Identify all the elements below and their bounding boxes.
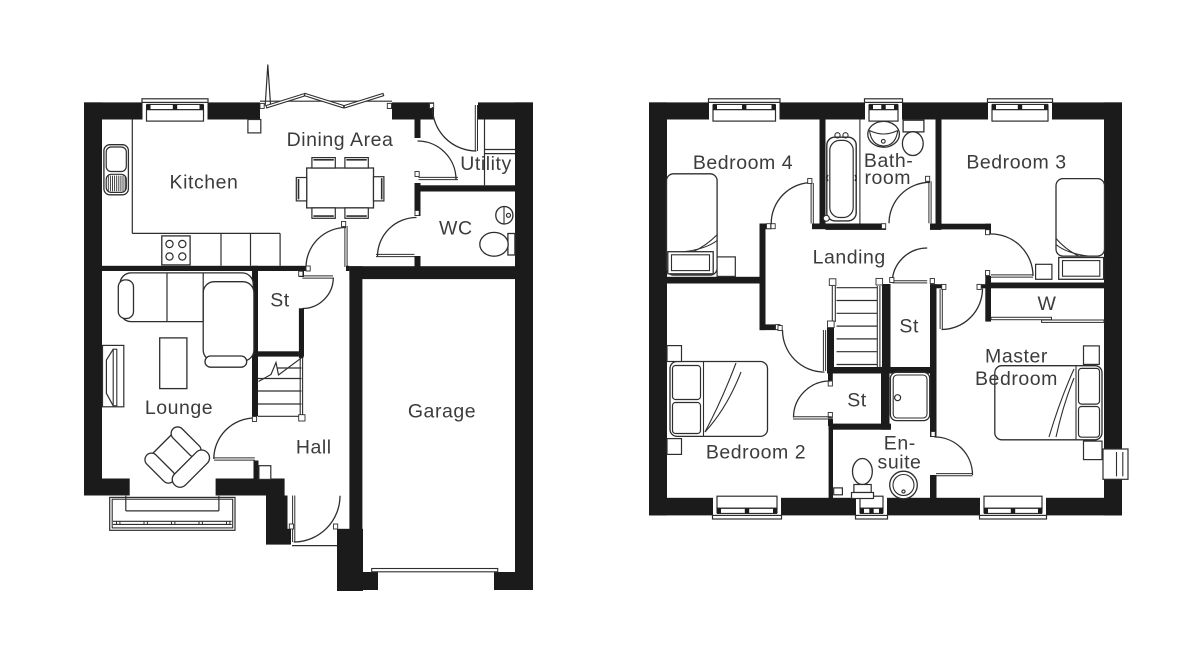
svg-text:Dining Area: Dining Area: [287, 129, 394, 151]
svg-text:room: room: [864, 167, 911, 189]
svg-text:Utility: Utility: [460, 153, 512, 175]
svg-text:Bedroom 2: Bedroom 2: [706, 442, 806, 464]
svg-text:W: W: [1038, 293, 1057, 315]
svg-text:St: St: [270, 290, 290, 312]
svg-text:WC: WC: [439, 218, 473, 240]
svg-text:suite: suite: [878, 451, 922, 473]
svg-text:St: St: [899, 315, 919, 337]
svg-text:Bedroom: Bedroom: [975, 368, 1058, 390]
svg-text:Master: Master: [985, 346, 1048, 368]
svg-text:Garage: Garage: [408, 401, 476, 423]
svg-text:Landing: Landing: [813, 247, 886, 269]
svg-text:St: St: [847, 390, 867, 412]
svg-text:Kitchen: Kitchen: [170, 172, 239, 194]
svg-text:Hall: Hall: [296, 436, 332, 458]
svg-text:Bedroom 4: Bedroom 4: [693, 152, 793, 174]
svg-text:Lounge: Lounge: [145, 397, 213, 419]
svg-text:Bedroom 3: Bedroom 3: [966, 151, 1066, 173]
